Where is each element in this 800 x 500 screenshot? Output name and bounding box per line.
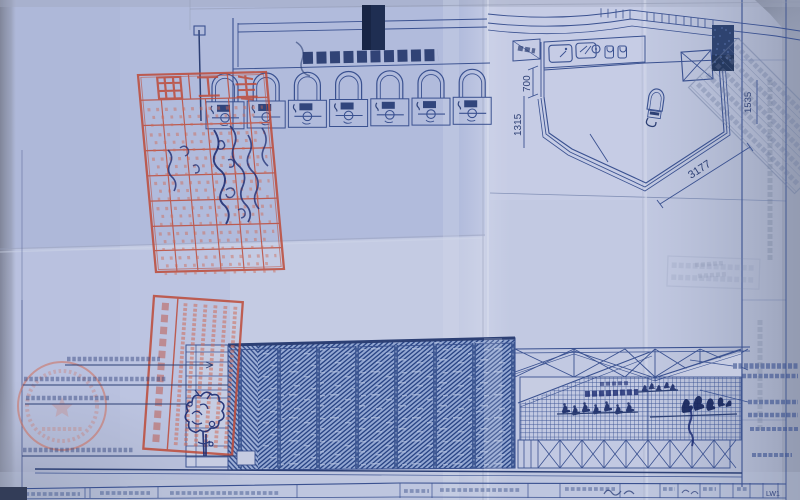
svg-text:1315: 1315 [513,113,524,136]
svg-text:LW1: LW1 [766,491,780,498]
svg-text:700: 700 [522,75,533,92]
